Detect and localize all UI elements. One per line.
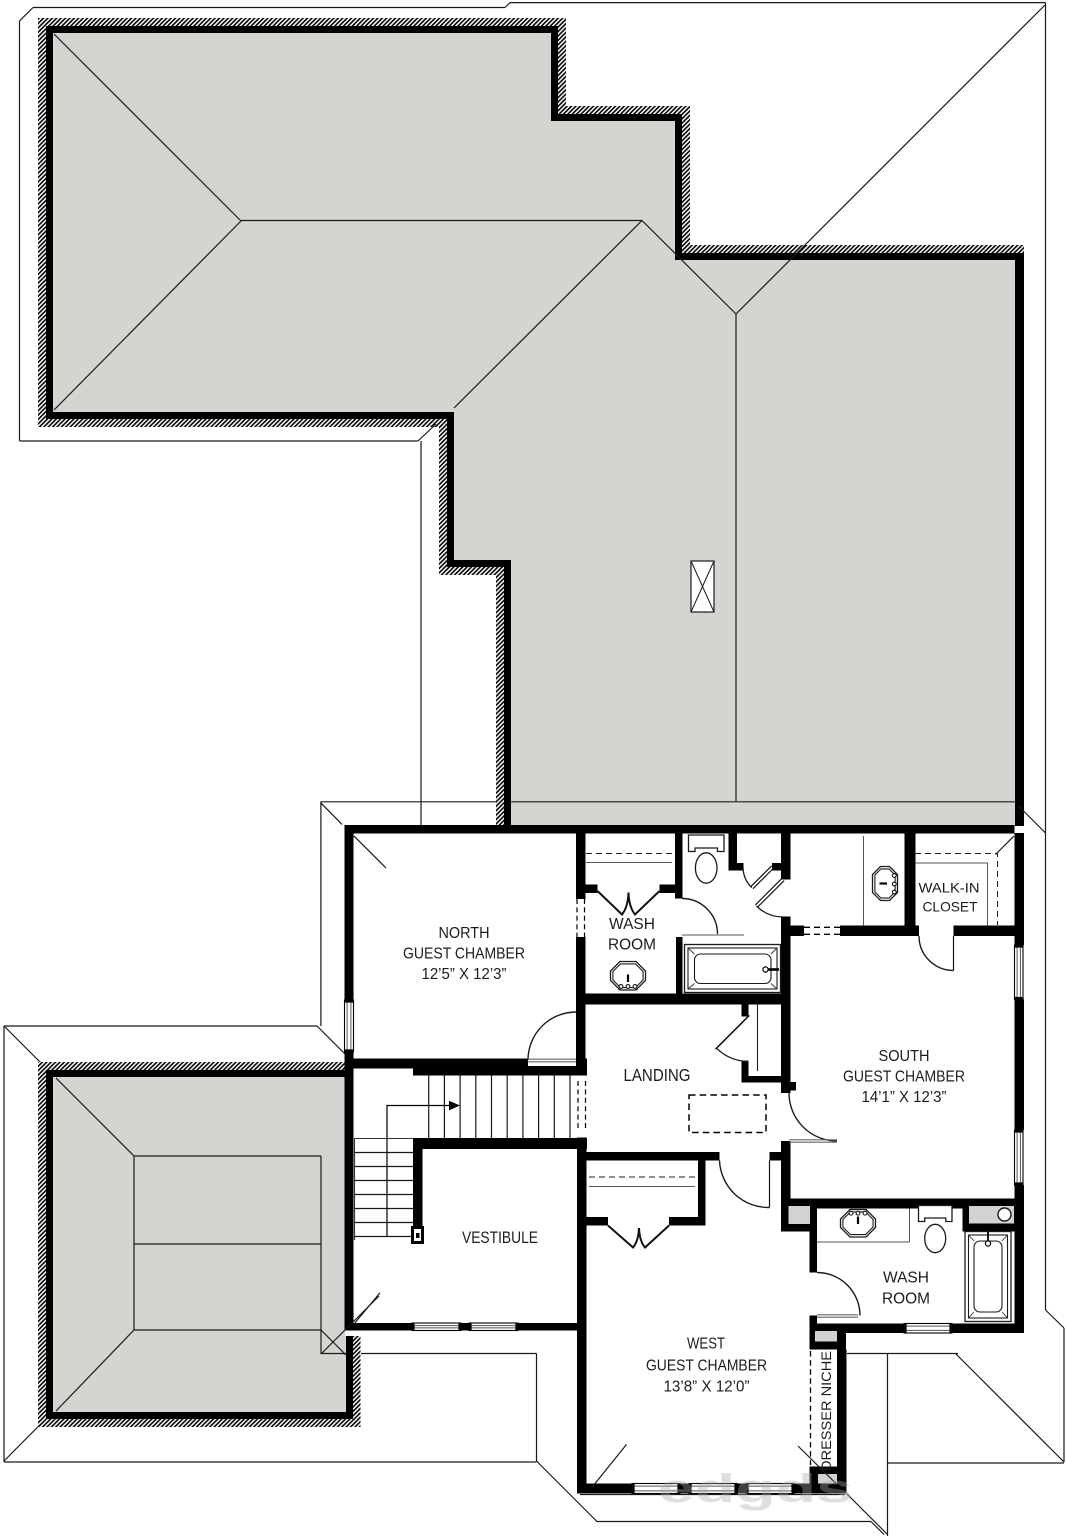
svg-text:WEST: WEST	[687, 1336, 725, 1353]
svg-text:LANDING: LANDING	[624, 1065, 691, 1085]
svg-text:DRESSER NICHE: DRESSER NICHE	[818, 1351, 834, 1471]
svg-text:NORTH: NORTH	[439, 925, 490, 942]
svg-text:CLOSET: CLOSET	[923, 899, 978, 915]
svg-text:14’1” X 12’3”: 14’1” X 12’3”	[862, 1089, 947, 1106]
svg-text:12’5” X 12’3”: 12’5” X 12’3”	[422, 966, 507, 983]
svg-text:ROOM: ROOM	[608, 937, 656, 954]
svg-text:GUEST CHAMBER: GUEST CHAMBER	[403, 946, 525, 963]
svg-text:edgds: edgds	[658, 1467, 853, 1511]
svg-text:ROOM: ROOM	[882, 1291, 930, 1308]
svg-text:GUEST CHAMBER: GUEST CHAMBER	[646, 1358, 767, 1375]
svg-text:WASH: WASH	[609, 916, 655, 933]
svg-text:WASH: WASH	[883, 1270, 929, 1287]
svg-text:VESTIBULE: VESTIBULE	[462, 1229, 538, 1247]
svg-text:13’8” X 12’0”: 13’8” X 12’0”	[664, 1379, 750, 1396]
svg-text:SOUTH: SOUTH	[879, 1048, 930, 1065]
svg-text:WALK-IN: WALK-IN	[919, 880, 980, 896]
svg-text:GUEST CHAMBER: GUEST CHAMBER	[843, 1069, 965, 1086]
